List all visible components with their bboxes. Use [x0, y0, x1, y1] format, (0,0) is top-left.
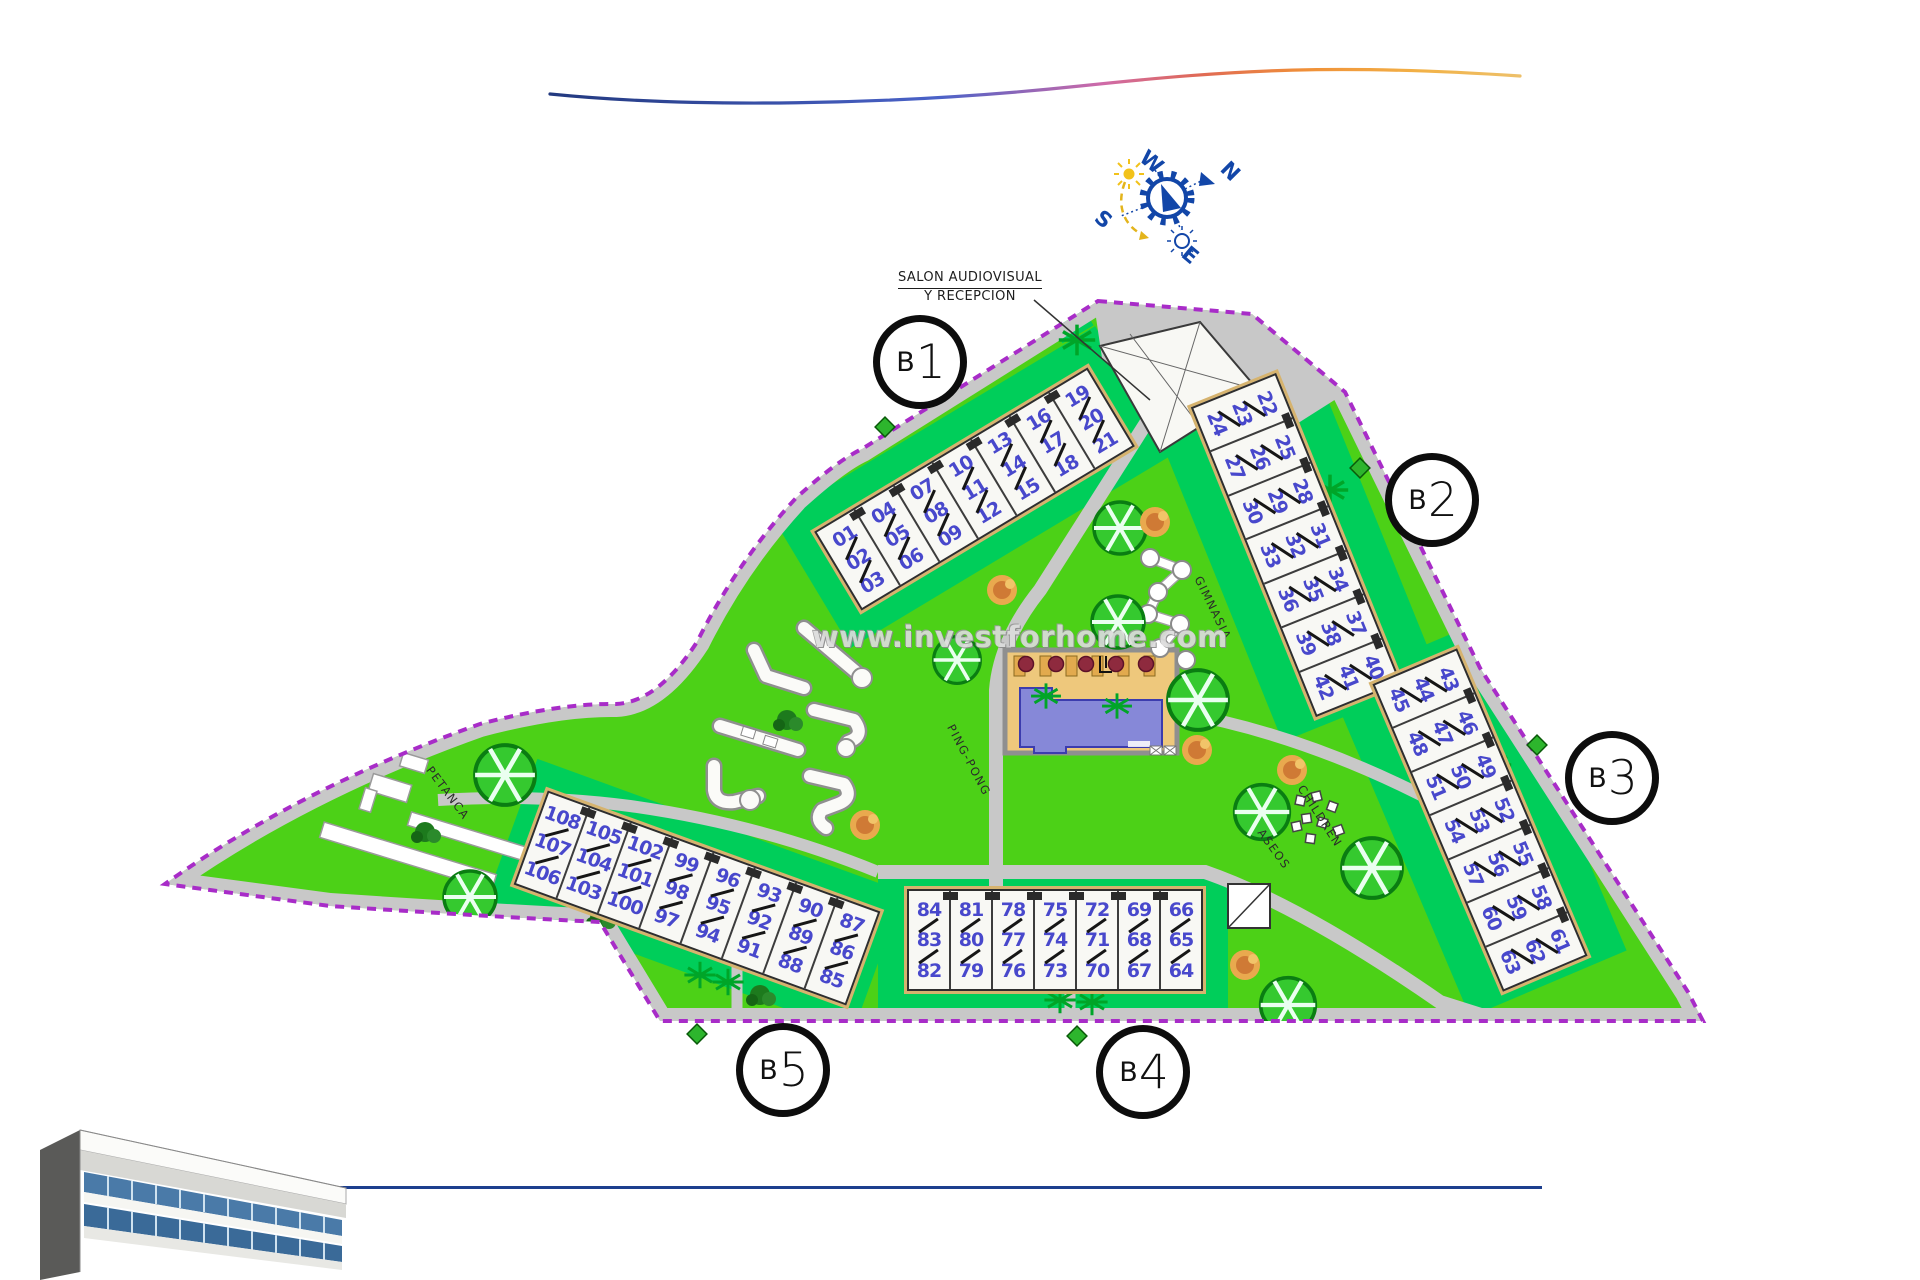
unit-number: 27 [1221, 453, 1248, 483]
unit-number: 22 [1253, 388, 1280, 418]
block-label-prefix: B [1119, 1057, 1138, 1088]
unit-number: 43 [1435, 664, 1462, 694]
block-label-b1: B1 [873, 315, 967, 409]
block-label-b5: B5 [736, 1023, 830, 1117]
unit-number: 31 [1307, 520, 1334, 550]
unit-number: 47 [1428, 718, 1455, 748]
unit-number: 32 [1282, 530, 1309, 560]
unit-number: 38 [1317, 618, 1344, 648]
footer-divider-line [280, 1186, 1542, 1189]
unit-number: 100 [604, 889, 645, 919]
unit-number: 97 [651, 906, 680, 932]
unit-number: 35 [1299, 574, 1326, 604]
unit-number: 42 [1310, 672, 1337, 702]
unit-number: 95 [703, 893, 732, 919]
unit-number: 99 [671, 850, 700, 876]
unit-number: 56 [1484, 849, 1511, 879]
north-arrow-icon [1199, 172, 1215, 186]
unit-trio: 727170 [1077, 891, 1119, 989]
unit-number: 74 [1043, 931, 1067, 950]
unit-number: 73 [1043, 962, 1067, 981]
block-label-number: 1 [916, 335, 944, 390]
compass-north-label: N [1216, 157, 1245, 186]
unit-trio: 787776 [993, 891, 1035, 989]
unit-number: 93 [754, 881, 783, 907]
block-label-prefix: B [1408, 485, 1427, 516]
unit-number: 63 [1496, 947, 1523, 977]
unit-number: 92 [744, 908, 773, 934]
unit-number: 67 [1127, 962, 1151, 981]
unit-trio: 818079 [951, 891, 993, 989]
unit-number: 62 [1521, 936, 1548, 966]
unit-number: 106 [521, 859, 562, 889]
unit-trio: 848382 [909, 891, 951, 989]
unit-number: 40 [1360, 652, 1387, 682]
unit-number: 98 [661, 878, 690, 904]
unit-number: 50 [1447, 762, 1474, 792]
unit-number: 36 [1274, 585, 1301, 615]
unit-number: 76 [1001, 962, 1025, 981]
compass-south-label: S [1090, 205, 1117, 233]
building-block-b4: 8483828180797877767574737271706968676665… [907, 889, 1203, 991]
block-label-b2: B2 [1385, 453, 1479, 547]
unit-number: 68 [1127, 931, 1151, 950]
site-plan-page: W N S E 01020304050607080910111213141516… [0, 0, 1920, 1280]
unit-number: 25 [1271, 432, 1298, 462]
unit-number: 41 [1335, 662, 1362, 692]
block-label-number: 4 [1139, 1045, 1167, 1100]
unit-number: 79 [959, 962, 983, 981]
unit-number: 33 [1257, 541, 1284, 571]
reception-label-line2: Y RECEPCION [924, 289, 1016, 304]
unit-number: 89 [785, 923, 814, 949]
block-label-number: 3 [1608, 751, 1636, 806]
pool-area [1005, 650, 1177, 755]
block-label-prefix: B [759, 1055, 778, 1086]
watermark: www.investforhome.com [812, 620, 1228, 654]
unit-number: 65 [1169, 931, 1193, 950]
sun-path-arc [1121, 182, 1143, 235]
unit-number: 28 [1289, 476, 1316, 506]
compass-rose: W N S E [1075, 136, 1310, 306]
unit-number: 48 [1404, 729, 1431, 759]
unit-number: 103 [563, 874, 604, 904]
toilets-building [1228, 884, 1270, 928]
unit-trio: 666564 [1161, 891, 1201, 989]
unit-number: 77 [1001, 931, 1025, 950]
unit-number: 55 [1509, 839, 1536, 869]
unit-number: 57 [1459, 860, 1486, 890]
unit-number: 91 [734, 936, 763, 962]
block-label-b4: B4 [1096, 1025, 1190, 1119]
block-label-b3: B3 [1565, 731, 1659, 825]
unit-number: 82 [917, 962, 941, 981]
decorative-swoosh [540, 52, 1530, 122]
unit-number: 86 [827, 938, 856, 964]
unit-number: 29 [1264, 486, 1291, 516]
unit-number: 51 [1422, 772, 1449, 802]
unit-number: 80 [959, 931, 983, 950]
unit-trio: 757473 [1035, 891, 1077, 989]
unit-number: 46 [1453, 708, 1480, 738]
unit-number: 83 [917, 931, 941, 950]
unit-number: 88 [775, 951, 804, 977]
unit-number: 85 [816, 966, 845, 992]
unit-number: 71 [1085, 931, 1109, 950]
unit-number: 64 [1169, 962, 1193, 981]
unit-number: 30 [1239, 497, 1266, 527]
unit-number: 34 [1324, 564, 1351, 594]
unit-trio: 696867 [1119, 891, 1161, 989]
sun-icon [1124, 169, 1135, 180]
block-label-number: 2 [1428, 473, 1456, 528]
unit-number: 26 [1246, 443, 1273, 473]
unit-number: 61 [1546, 926, 1573, 956]
reception-label: SALON AUDIOVISUAL Y RECEPCION [880, 270, 1060, 306]
unit-number: 37 [1342, 608, 1369, 638]
block-label-number: 5 [779, 1043, 807, 1098]
developer-building-logo [28, 1086, 358, 1280]
unit-number: 58 [1527, 882, 1554, 912]
unit-number: 87 [837, 911, 866, 937]
unit-number: 90 [795, 896, 824, 922]
unit-number: 39 [1292, 629, 1319, 659]
unit-number: 49 [1472, 751, 1499, 781]
unit-number: 70 [1085, 962, 1109, 981]
unit-number: 94 [692, 921, 721, 947]
block-label-prefix: B [1588, 763, 1607, 794]
unit-number: 54 [1441, 816, 1468, 846]
block-label-prefix: B [896, 347, 915, 378]
reception-label-line1: SALON AUDIOVISUAL [898, 270, 1042, 289]
unit-number: 23 [1228, 399, 1255, 429]
unit-number: 96 [713, 865, 742, 891]
